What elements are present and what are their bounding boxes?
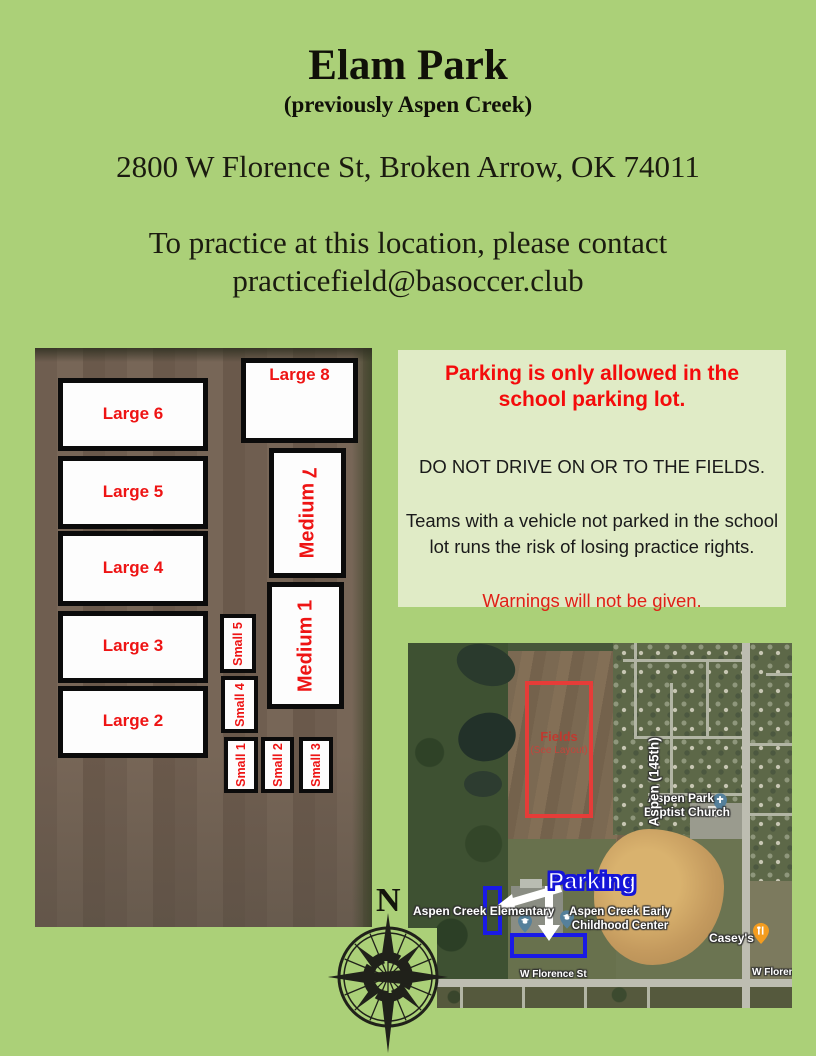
field-large-8: Large 8 (241, 358, 358, 443)
early-childhood-label: Aspen Creek Early Childhood Center (568, 905, 672, 933)
parking-notice: Parking is only allowed in the school pa… (398, 350, 786, 607)
field-medium-1: Medium 1 (267, 582, 344, 709)
field-medium-7: Medium7 (269, 448, 346, 578)
flyer-page: Elam Park (previously Aspen Creek) 2800 … (0, 0, 816, 1056)
field-label: Large 3 (63, 636, 203, 656)
parking-callout-label: Parking (548, 868, 636, 896)
field-small-3: Small 3 (299, 737, 333, 793)
field-small-1: Small 1 (224, 737, 258, 793)
field-small-4: Small 4 (221, 676, 258, 733)
field-label: Small 4 (233, 683, 247, 727)
field-label: Small 2 (271, 743, 285, 787)
field-label: Small 5 (231, 622, 245, 666)
florence-st-label-clipped: W Floren (752, 967, 792, 978)
field-large-5: Large 5 (58, 456, 208, 529)
field-label: Medium7 (296, 468, 319, 559)
field-label: Large 4 (63, 558, 203, 578)
field-label: Medium 1 (294, 599, 317, 691)
field-label: Large 6 (63, 404, 203, 424)
field-label: Large 5 (63, 482, 203, 502)
field-layout-map: Large 6 Large 5 Large 4 Large 3 Large 2 … (35, 348, 372, 927)
page-title: Elam Park (0, 42, 816, 89)
field-large-2: Large 2 (58, 686, 208, 758)
field-label: Small 1 (234, 743, 248, 787)
field-label: Large 8 (246, 365, 353, 385)
field-small-5: Small 5 (220, 614, 256, 673)
satellite-map: Fields (See Layout) (408, 643, 792, 1008)
field-large-3: Large 3 (58, 611, 208, 683)
field-label: Small 3 (309, 743, 323, 787)
notice-heading: Parking is only allowed in the school pa… (427, 361, 757, 413)
compass-rose-icon (318, 903, 458, 1056)
field-label: Large 2 (63, 711, 203, 731)
caseys-label: Casey's (709, 931, 754, 945)
contact-intro: To practice at this location, please con… (0, 224, 816, 262)
notice-rule: DO NOT DRIVE ON OR TO THE FIELDS. (402, 455, 782, 478)
notice-warning: Warnings will not be given. (402, 590, 782, 612)
contact-block: To practice at this location, please con… (0, 224, 816, 300)
food-pin-icon (753, 923, 769, 944)
contact-email: practicefield@basoccer.club (0, 262, 816, 300)
field-large-6: Large 6 (58, 378, 208, 451)
parking-arrows (408, 643, 792, 1008)
aspen-145th-label: Aspen (145th) (647, 767, 662, 827)
field-large-4: Large 4 (58, 531, 208, 606)
field-small-2: Small 2 (261, 737, 294, 793)
notice-consequence: Teams with a vehicle not parked in the s… (403, 508, 781, 560)
florence-st-label: W Florence St (520, 969, 587, 980)
page-subtitle: (previously Aspen Creek) (0, 92, 816, 117)
address-line: 2800 W Florence St, Broken Arrow, OK 740… (0, 150, 816, 184)
